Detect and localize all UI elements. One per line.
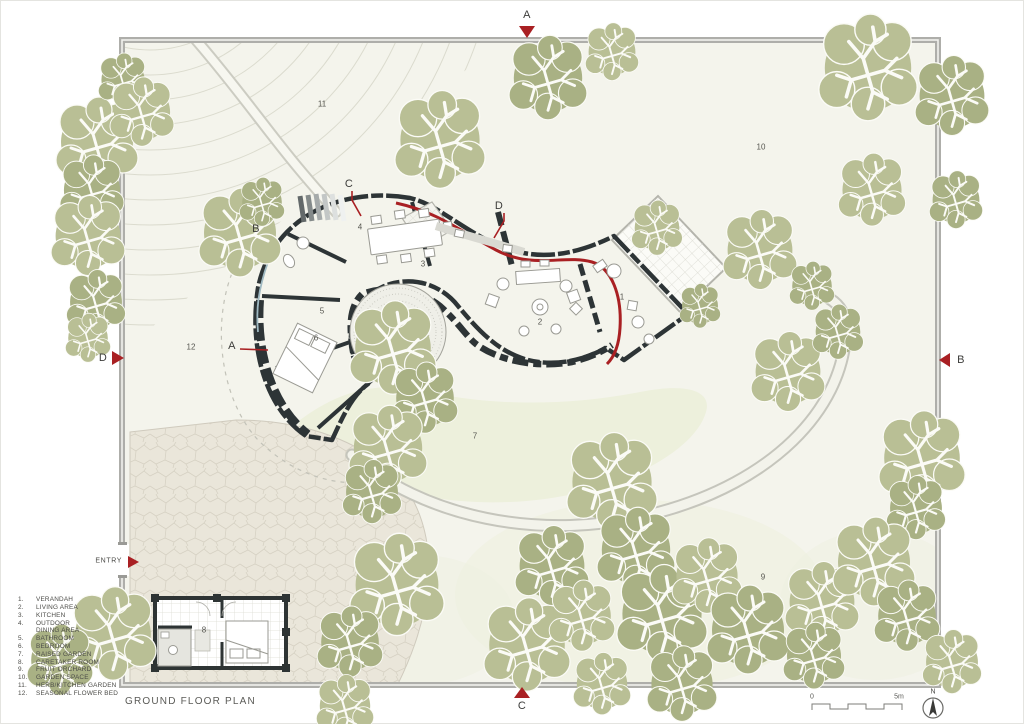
legend-item-label: VERANDAH [36,596,134,603]
tree [838,153,905,226]
tree [813,304,864,359]
entry-label: ENTRY [95,558,122,565]
legend-item-label: SEASONAL FLOWER BED [36,690,134,697]
legend-item: 1.VERANDAH [18,596,134,603]
section-marker-c-label: C [518,700,526,712]
legend-item-label: BATHROOM [36,635,134,642]
tree [783,622,845,689]
plan-section-a-label: A [228,340,236,352]
caretaker-building [151,594,290,672]
section-marker-d-label: D [99,352,107,364]
plan-section-d-label: D [495,200,503,212]
legend-item-label: LIVING AREA [36,604,134,611]
legend-item-label: BEDROOM [36,643,134,650]
plan-section-c-label: C [345,178,353,190]
legend-item-number: 9. [18,666,33,673]
plan-number-10: 10 [757,143,766,152]
tree [723,210,797,290]
legend-item-label: OUTDOOR DINING AREA [36,620,134,635]
tree [549,580,615,651]
legend-item-number: 7. [18,651,33,658]
tree [707,585,789,674]
scale-end-label: 5m [894,694,904,701]
legend-item: 12.SEASONAL FLOWER BED [18,690,134,697]
plan-number-9: 9 [761,573,765,582]
legend-item: 6.BEDROOM [18,643,134,650]
tree [342,460,401,524]
north-arrow [923,698,943,718]
section-marker-a-arrow [519,26,535,38]
legend-item-number: 6. [18,643,33,650]
plan-number-6: 6 [314,334,318,343]
legend-item: 9.FRUIT ORCHARD [18,666,134,673]
legend-item: 2.LIVING AREA [18,604,134,611]
plan-number-1: 1 [620,293,624,302]
legend-item-label: RAISED GARDEN [36,651,134,658]
legend-item-number: 11. [18,682,33,689]
drawing-title: GROUND FLOOR PLAN [125,696,256,707]
legend-item: 11.HERB/KITCHEN GARDEN [18,682,134,689]
plan-number-7: 7 [473,432,477,441]
legend-item-number: 12. [18,690,33,697]
legend-item-number: 1. [18,596,33,603]
legend-item-label: KITCHEN [36,612,134,619]
scale-start-label: 0 [810,694,814,701]
plan-section-b-label: B [252,223,260,235]
plan-number-8: 8 [202,626,206,635]
legend-item-number: 8. [18,659,33,666]
tree [239,177,284,226]
legend-item: 8.CARETAKER ROOM [18,659,134,666]
tree [647,646,717,722]
section-marker-b-label: B [957,354,965,366]
plan-number-2: 2 [538,318,542,327]
scale-bar [812,704,902,710]
tree [680,284,721,329]
floor-plan-canvas [0,0,1024,724]
legend-item-label: GARDEN SPACE [36,674,134,681]
legend-item: 4.OUTDOOR DINING AREA [18,620,134,635]
tree [395,91,485,189]
tree [316,675,373,724]
tree [632,200,683,255]
tree [585,23,638,81]
tree [789,261,834,310]
tree [509,35,587,120]
section-marker-a-label: A [523,9,531,21]
legend-item: 7.RAISED GARDEN [18,651,134,658]
plan-number-12: 12 [187,343,196,352]
tree [110,77,174,146]
tree [819,14,917,121]
legend-item-label: HERB/KITCHEN GARDEN [36,682,134,689]
plan-number-4: 4 [358,223,362,232]
legend-item-number: 2. [18,604,33,611]
tree [922,630,981,694]
tree [915,56,989,136]
tree [573,653,630,715]
legend-item: 5.BATHROOM [18,635,134,642]
legend-item-number: 3. [18,612,33,619]
plan-number-11: 11 [318,100,326,109]
legend-item-number: 10. [18,674,33,681]
tree [317,606,383,677]
legend-item-label: CARETAKER ROOM [36,659,134,666]
legend-item-label: FRUIT ORCHARD [36,666,134,673]
plan-number-5: 5 [320,307,324,316]
legend-item: 3.KITCHEN [18,612,134,619]
site-plan-sheet: A C D B C D B A ENTRY 123456789101112 1.… [0,0,1024,724]
north-label: N [930,689,935,696]
legend-item: 10.GARDEN SPACE [18,674,134,681]
legend: 1.VERANDAH2.LIVING AREA3.KITCHEN4.OUTDOO… [18,596,134,698]
tree [929,171,982,229]
legend-item-number: 4. [18,620,33,635]
plan-number-3: 3 [421,260,425,269]
legend-item-number: 5. [18,635,33,642]
tree [51,196,125,276]
